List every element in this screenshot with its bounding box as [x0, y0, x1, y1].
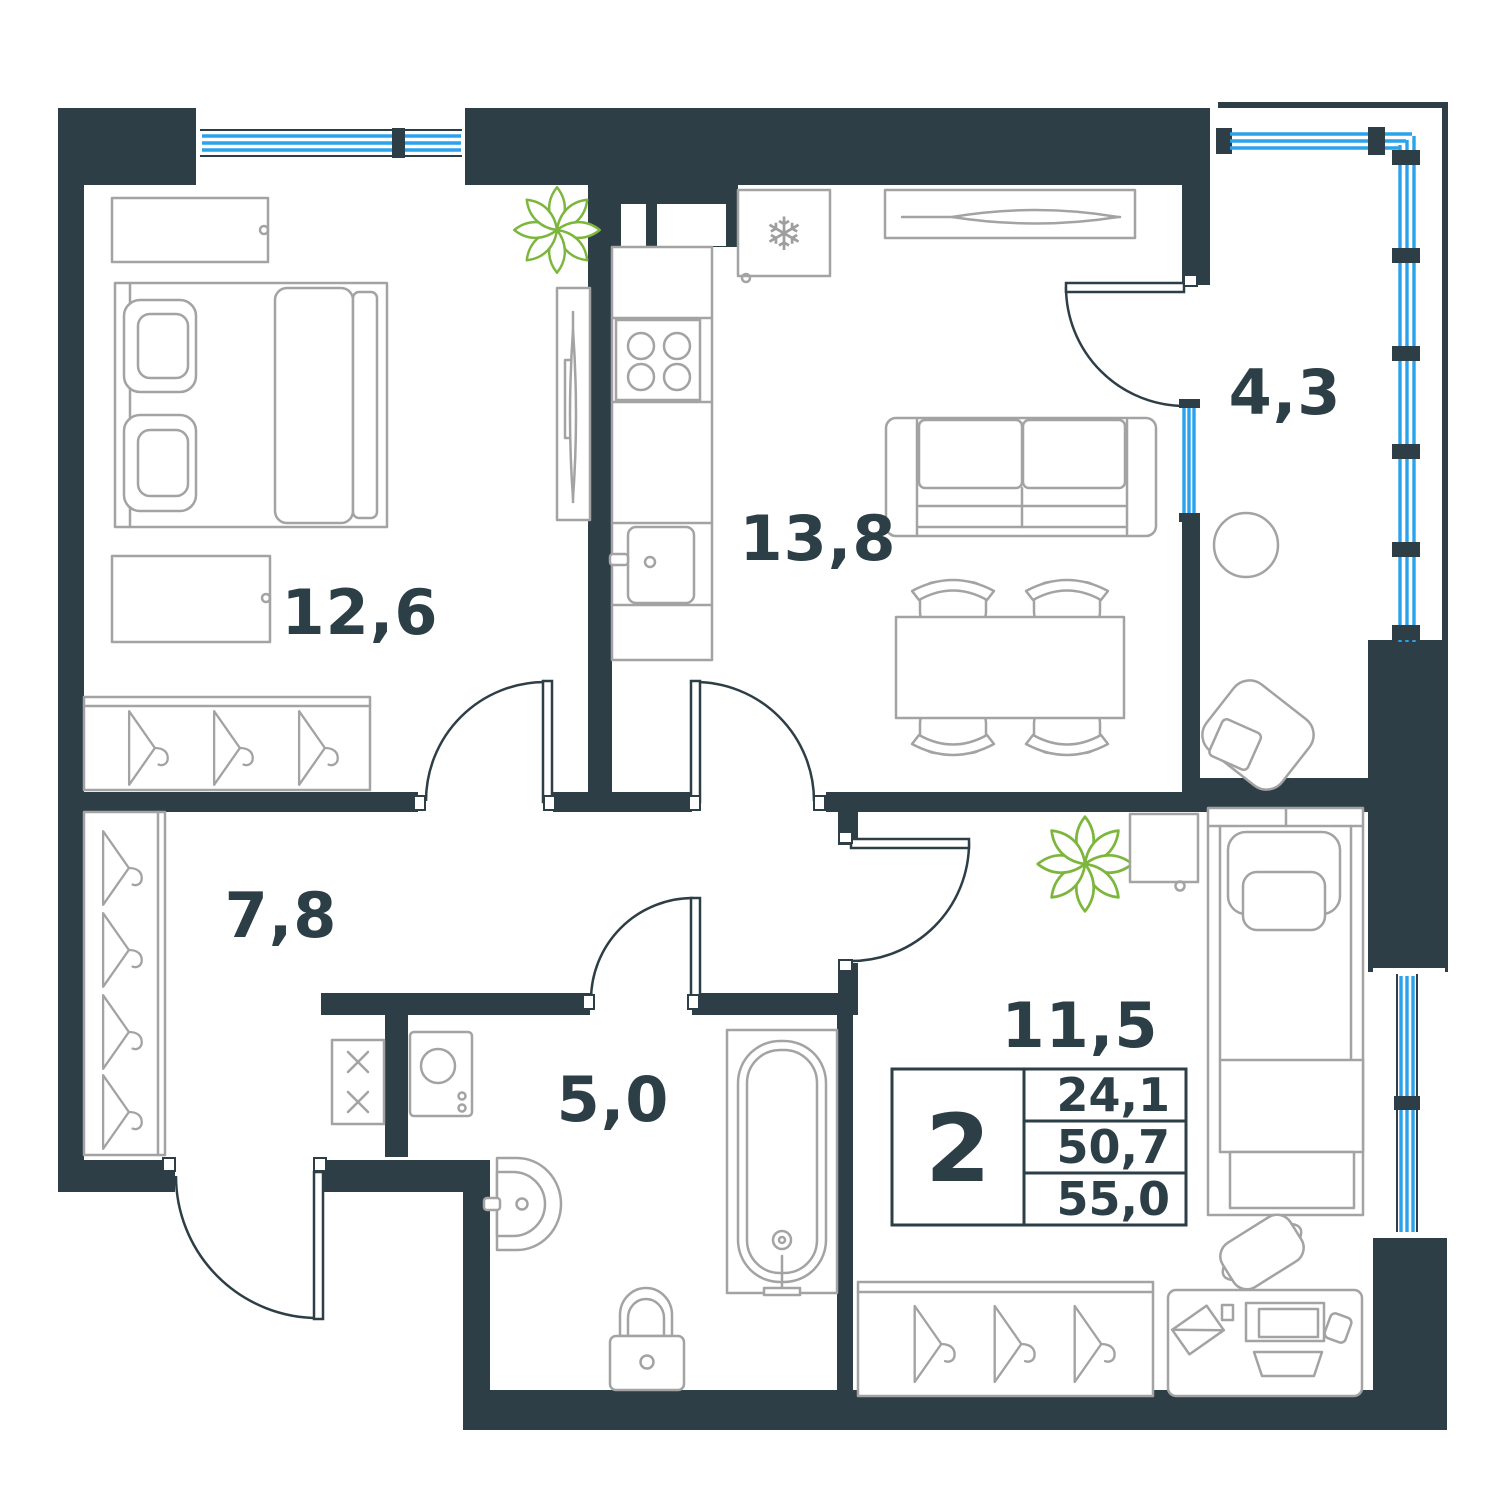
wardrobe [858, 1282, 1153, 1396]
room-area-label-bathroom: 5,0 [557, 1063, 670, 1136]
double-bed [115, 283, 387, 527]
wall-segment [58, 108, 84, 1192]
wall-segment [1368, 640, 1448, 972]
plant-icon [514, 187, 600, 273]
cabinet [1130, 814, 1198, 891]
wall-segment [692, 993, 838, 1015]
furniture-bedroom-1 [84, 187, 600, 790]
furniture-hallway [84, 812, 384, 1155]
door-bathroom [583, 898, 700, 1009]
wall-segment [58, 792, 418, 812]
vent-shaft [621, 204, 646, 246]
tv-unit [557, 288, 590, 520]
bathtub [727, 1030, 837, 1295]
area-value-row-1: 24,1 [1057, 1068, 1171, 1122]
room-area-label-hallway: 7,8 [225, 879, 338, 952]
snowflake-icon: ❄ [765, 207, 804, 261]
wall-segment [1216, 128, 1232, 154]
nightstand [112, 556, 270, 642]
utility-panel [332, 1040, 384, 1124]
room-area-label-kitchen-living: 13,8 [740, 502, 897, 575]
fridge: ❄ [738, 190, 830, 282]
wall-segment [465, 108, 1210, 185]
wall-segment [315, 1160, 490, 1192]
window-bedroom-1 [196, 108, 465, 185]
wall-segment [58, 1160, 175, 1192]
door-kitchen [689, 681, 825, 810]
furniture-kitchen-living: ❄ [610, 190, 1156, 755]
tv-console [885, 190, 1135, 238]
wall-segment [588, 185, 612, 792]
floor-plan-drawing: ❄ [0, 0, 1500, 1500]
wall-segment [321, 993, 590, 1015]
plant-icon [1038, 817, 1133, 912]
stove [616, 320, 700, 400]
wall-segment [837, 1015, 853, 1390]
vent-shaft [657, 204, 726, 246]
wall-segment [463, 1192, 490, 1390]
floor-plan-page: ❄ [0, 0, 1500, 1500]
hall-closet [84, 812, 165, 1155]
wall-segment [553, 792, 692, 812]
area-value-row-3: 55,0 [1057, 1172, 1171, 1226]
door-bedroom-1 [414, 681, 555, 810]
single-bed [1208, 808, 1363, 1215]
room-area-label-balcony: 4,3 [1229, 356, 1342, 429]
door-balcony [1066, 275, 1197, 406]
balcony-outer-wall [1442, 102, 1448, 642]
balcony-table [1214, 513, 1278, 577]
area-value-row-2: 50,7 [1057, 1120, 1171, 1174]
washing-machine [410, 1032, 472, 1116]
dining-table [896, 580, 1124, 755]
desk-chair [1210, 1206, 1314, 1298]
window-kitchen-balcony [1179, 399, 1200, 522]
room-area-label-bedroom-1: 12,6 [282, 576, 439, 649]
sink [484, 1158, 561, 1250]
sofa [886, 418, 1156, 536]
wall-segment [1182, 185, 1210, 285]
balcony-outer-wall [1218, 102, 1448, 108]
phone [1222, 1305, 1233, 1320]
desk [1168, 1206, 1362, 1396]
wall-segment [385, 1015, 408, 1157]
wall-segment [1182, 515, 1200, 778]
door-entrance [163, 1158, 326, 1319]
nightstand [112, 198, 268, 262]
door-bedroom-2 [839, 832, 969, 971]
window-bedroom-2 [1373, 968, 1445, 1238]
rooms-count: 2 [925, 1095, 990, 1204]
furniture-balcony [1192, 513, 1322, 801]
wardrobe [84, 697, 370, 790]
apartment-info-table: 2 24,1 50,7 55,0 [892, 1068, 1186, 1226]
keyboard [1254, 1352, 1322, 1376]
toilet [610, 1288, 684, 1390]
room-area-label-bedroom-2: 11,5 [1002, 989, 1159, 1062]
